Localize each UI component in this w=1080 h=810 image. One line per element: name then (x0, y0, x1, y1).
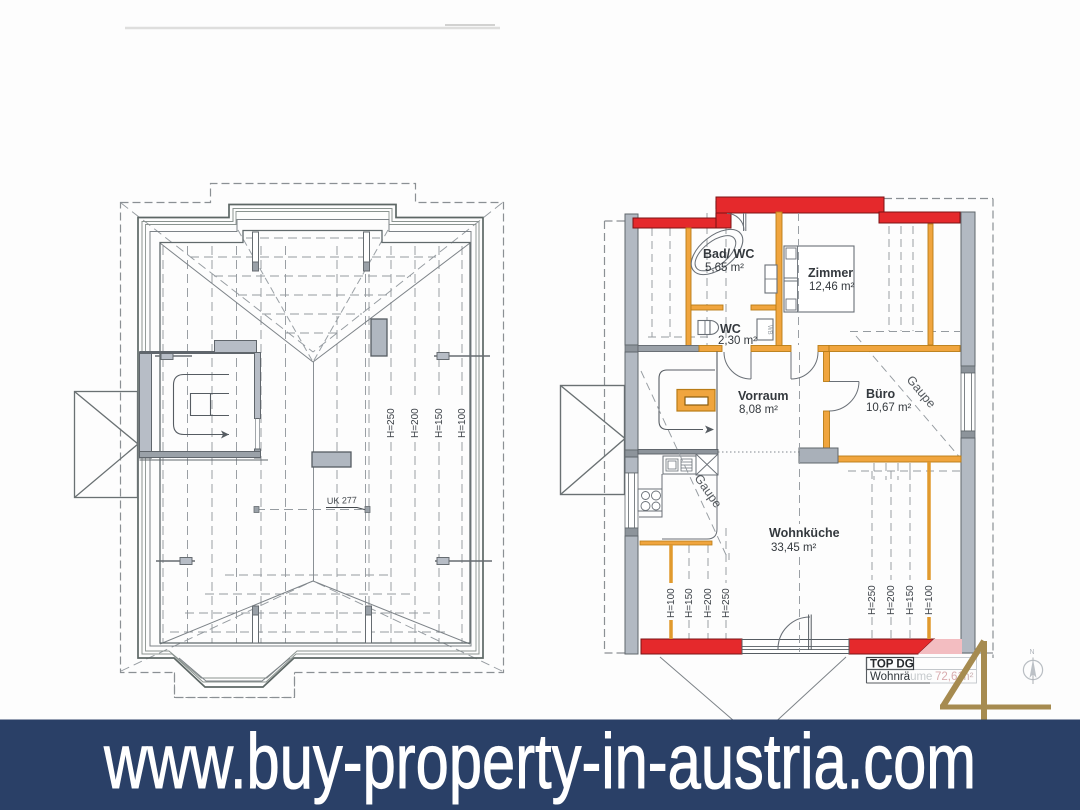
svg-text:TOP DG: TOP DG (870, 659, 914, 671)
svg-text:H=150: H=150 (434, 408, 445, 438)
svg-text:10,67 m²: 10,67 m² (866, 402, 912, 414)
svg-text:H=250: H=250 (721, 588, 732, 618)
svg-text:Zimmer: Zimmer (808, 266, 853, 280)
svg-text:2,30 m²: 2,30 m² (718, 335, 757, 347)
svg-text:H=200: H=200 (703, 588, 714, 618)
svg-text:H=200: H=200 (886, 585, 897, 615)
svg-text:N: N (1030, 649, 1035, 656)
svg-text:H=100: H=100 (457, 408, 468, 438)
svg-text:H=250: H=250 (867, 585, 878, 615)
svg-text:Bad/ WC: Bad/ WC (703, 247, 754, 261)
svg-text:5,65 m²: 5,65 m² (705, 262, 744, 274)
svg-text:H=100: H=100 (666, 588, 677, 618)
svg-text:Wohnküche: Wohnküche (769, 526, 840, 540)
svg-text:WC: WC (720, 322, 741, 336)
svg-text:H=150: H=150 (905, 585, 916, 615)
svg-text:UK 277: UK 277 (327, 495, 357, 506)
svg-text:WB: WB (766, 325, 772, 335)
svg-text:33,45 m²: 33,45 m² (771, 542, 817, 554)
svg-text:H=250: H=250 (386, 408, 397, 438)
svg-text:H=200: H=200 (410, 408, 421, 438)
svg-text:H=100: H=100 (924, 585, 935, 615)
svg-text:Büro: Büro (866, 387, 896, 401)
svg-text:Vorraum: Vorraum (738, 389, 788, 403)
svg-text:www.buy-property-in-austria.co: www.buy-property-in-austria.com (103, 717, 976, 805)
svg-text:12,46 m²: 12,46 m² (809, 281, 855, 293)
svg-text:H=150: H=150 (684, 588, 695, 618)
svg-text:8,08 m²: 8,08 m² (739, 404, 778, 416)
